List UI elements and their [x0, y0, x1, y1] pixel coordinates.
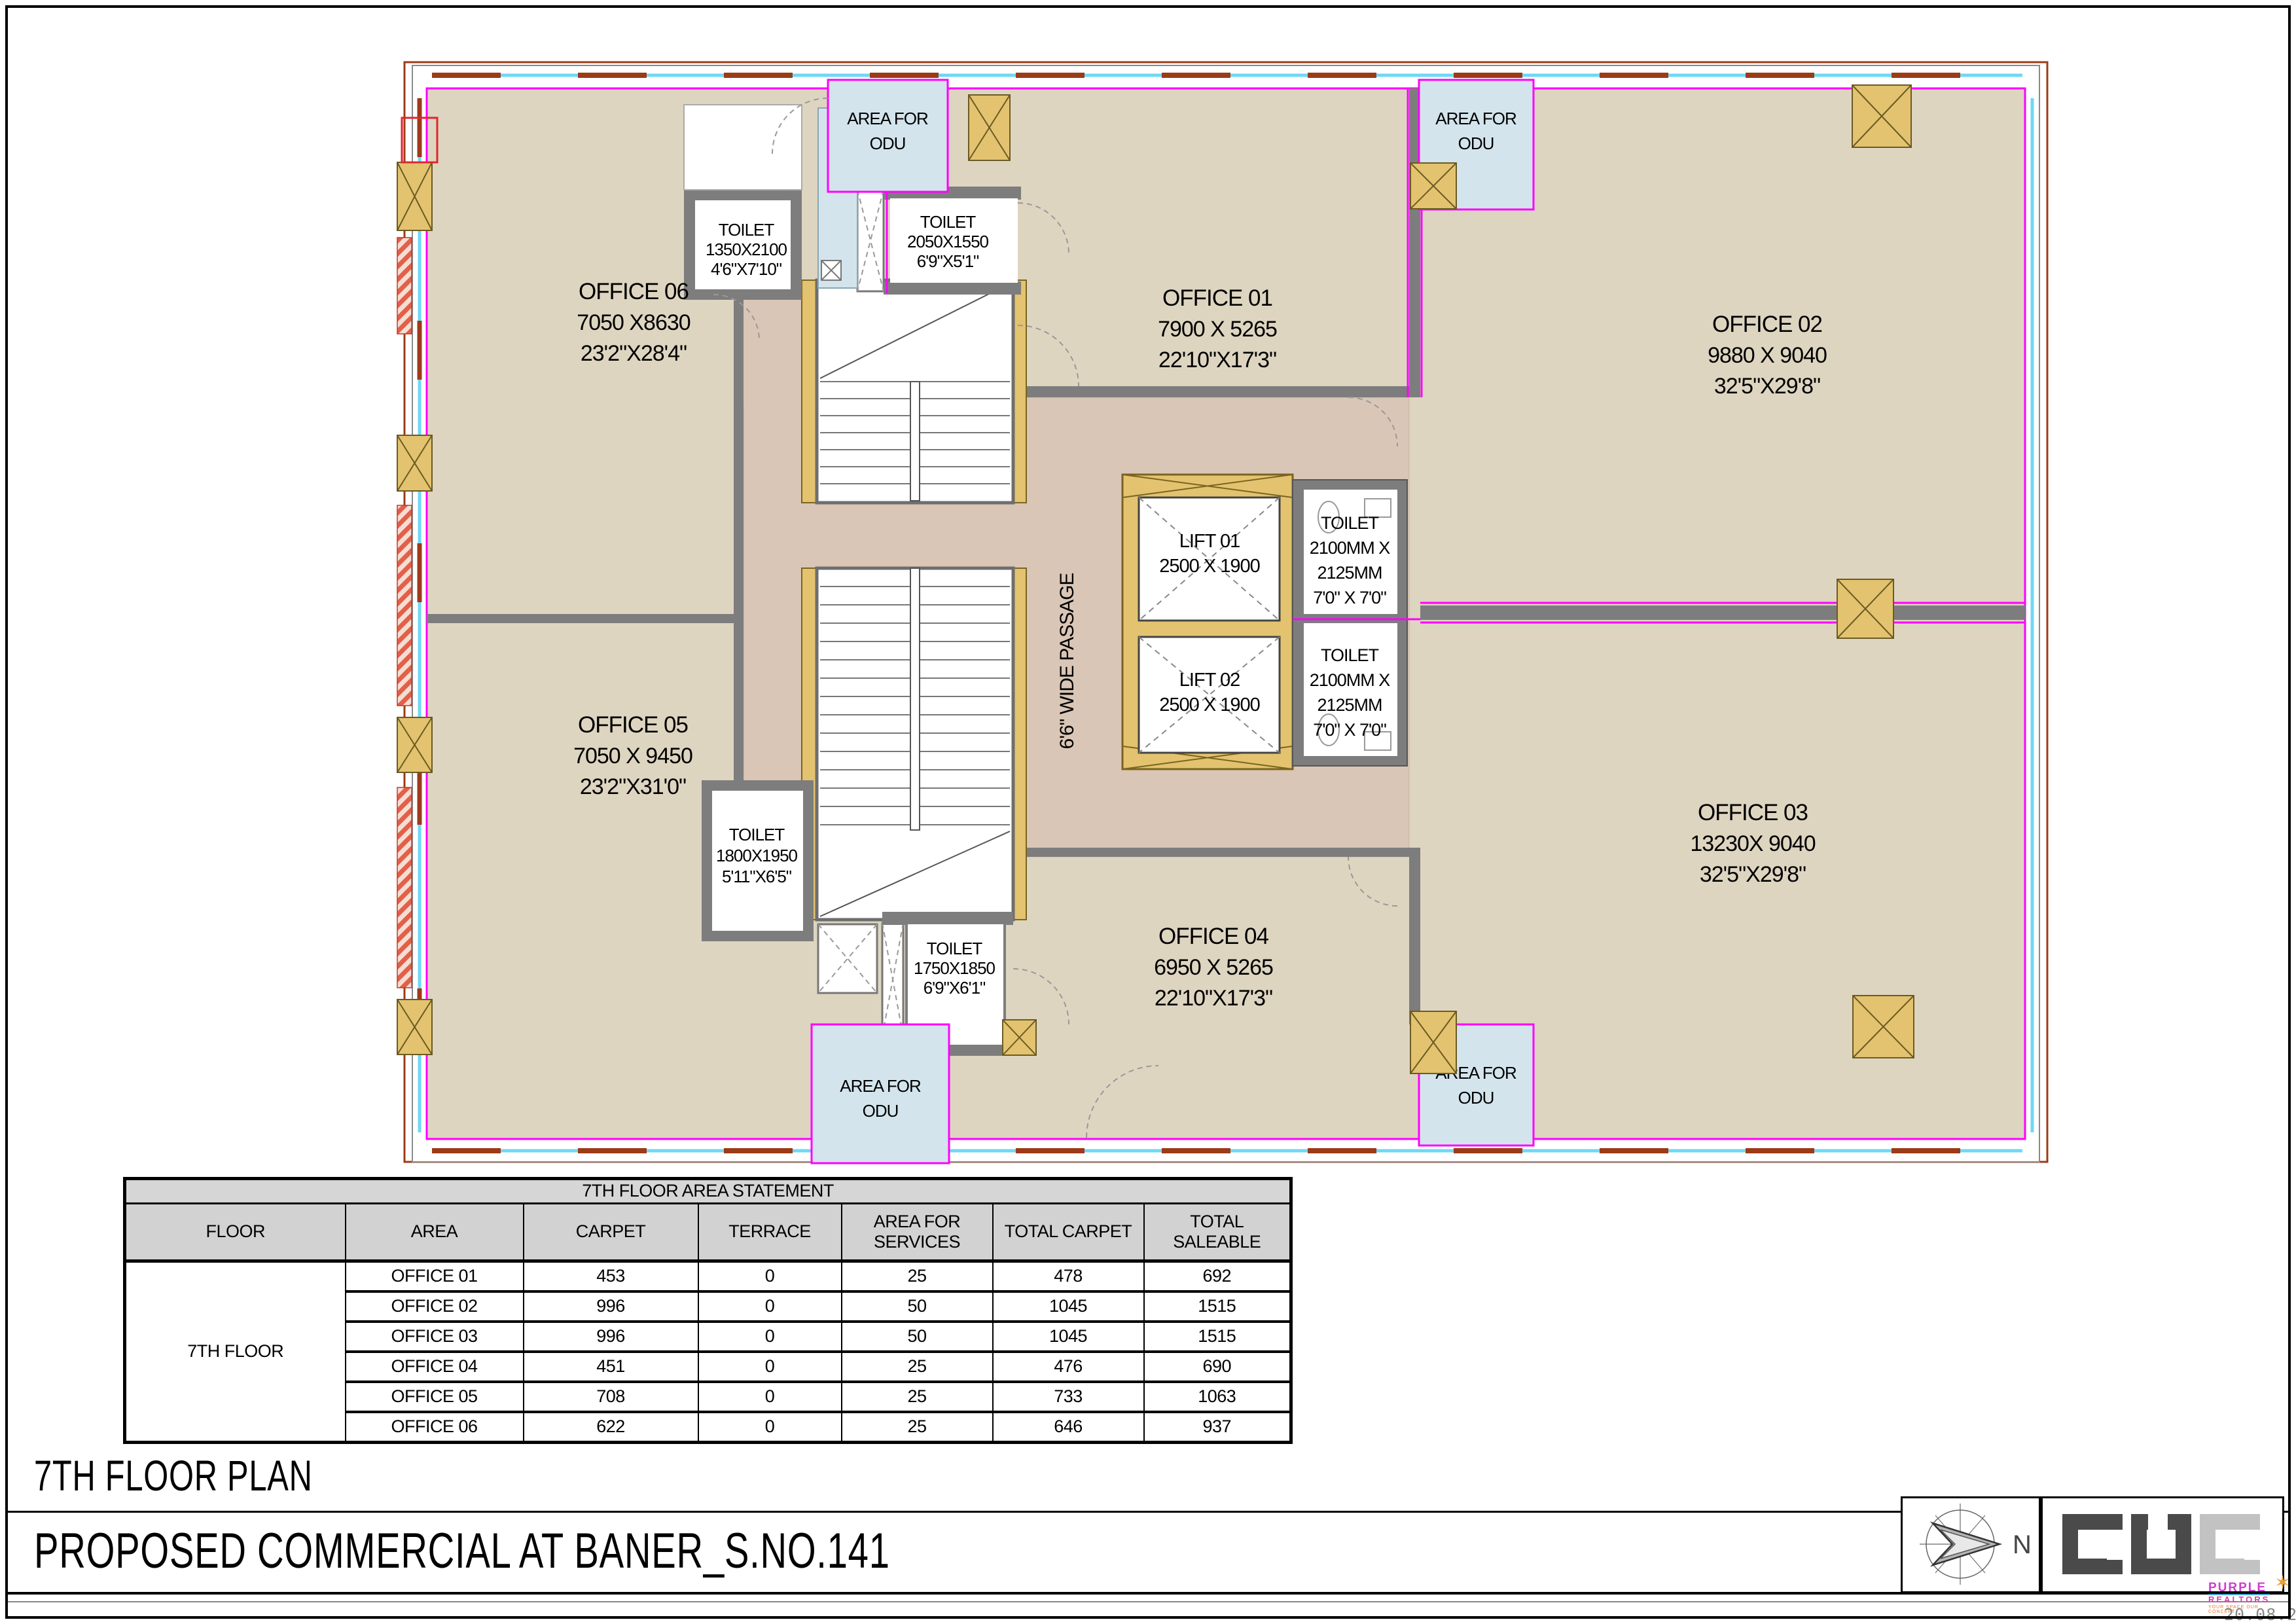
- sheet-border: [5, 5, 2291, 1619]
